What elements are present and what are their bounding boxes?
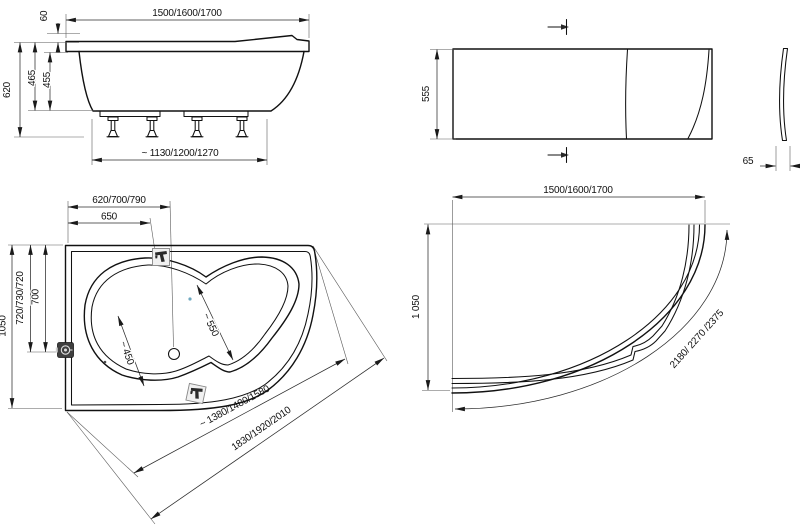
dim-label-bowl-width: ~ 550	[200, 312, 221, 339]
tub-body-profile	[79, 52, 304, 112]
dim-label-depth-variants: 720/730/720	[15, 271, 26, 325]
apron-panel-band	[452, 225, 705, 393]
technical-drawing-page: 1500/1600/1700	[0, 0, 800, 527]
apron-plan-view: 1500/1600/1700 1 050 2180/ 2270 /2375	[411, 185, 730, 412]
apron-panel-outline	[453, 49, 712, 139]
bathtub-drawing-canvas: 1500/1600/1700	[0, 0, 800, 527]
extension-line-to-drain	[170, 201, 174, 347]
apron-seam-line	[626, 50, 628, 139]
dim-label-base: ~ 1130/1200/1270	[142, 148, 220, 159]
foot	[146, 117, 158, 137]
tub-feet	[107, 117, 248, 137]
extension-line	[313, 246, 387, 361]
faucet-icon	[186, 383, 206, 403]
extension-line	[67, 412, 138, 477]
drain-hole	[169, 349, 180, 360]
extension-line	[67, 412, 155, 524]
dim-label-seat-width: ~ 450	[117, 340, 136, 367]
extension-line	[313, 246, 348, 364]
drain-icon	[56, 343, 74, 358]
dim-label-650: 650	[101, 212, 118, 223]
foot	[191, 117, 203, 137]
dim-label-60: 60	[39, 10, 50, 21]
foot	[107, 117, 119, 137]
faucet-icon	[153, 249, 170, 266]
dim-label-465: 465	[27, 69, 38, 86]
tub-rim-inner-edge	[72, 252, 312, 406]
dim-label-455: 455	[42, 71, 53, 88]
dim-label-outer-diagonal: 1830/1920/2010	[230, 404, 294, 453]
dim-label-arc-length: 2180/ 2270 /2375	[668, 307, 727, 370]
dim-label-length: 1500/1600/1700	[543, 185, 613, 196]
tub-bowl-inner	[91, 264, 288, 374]
dim-label-width: 1 050	[411, 294, 422, 319]
dimension-arc-length	[455, 230, 727, 409]
dim-label-width-variants: 620/700/790	[92, 195, 146, 206]
dim-label-620: 620	[2, 81, 13, 98]
side-elevation-view: 1500/1600/1700	[2, 8, 309, 165]
support-frame	[100, 112, 248, 117]
apron-side-profile	[780, 49, 788, 141]
section-arrow-icon	[548, 20, 569, 35]
dim-label-length: 1500/1600/1700	[152, 8, 222, 19]
jet-dot	[188, 297, 191, 300]
dim-label-1050: 1050	[0, 315, 9, 337]
tub-rim-profile	[66, 36, 309, 52]
section-arrow-icon	[548, 148, 569, 163]
foot	[236, 117, 248, 137]
dim-label-700: 700	[31, 288, 42, 305]
extension-line-to-faucet	[150, 218, 155, 248]
apron-return-curve	[688, 50, 709, 139]
jet-dot	[104, 361, 107, 364]
apron-front-view: 555 65	[421, 20, 800, 172]
dim-label-555: 555	[421, 85, 432, 102]
dimension-line-inner-diagonal	[134, 359, 345, 473]
bathtub-plan-view: 620/700/790 650 1050 720/730/720 700 ~ 1…	[0, 195, 387, 524]
dim-label-65: 65	[743, 156, 754, 167]
